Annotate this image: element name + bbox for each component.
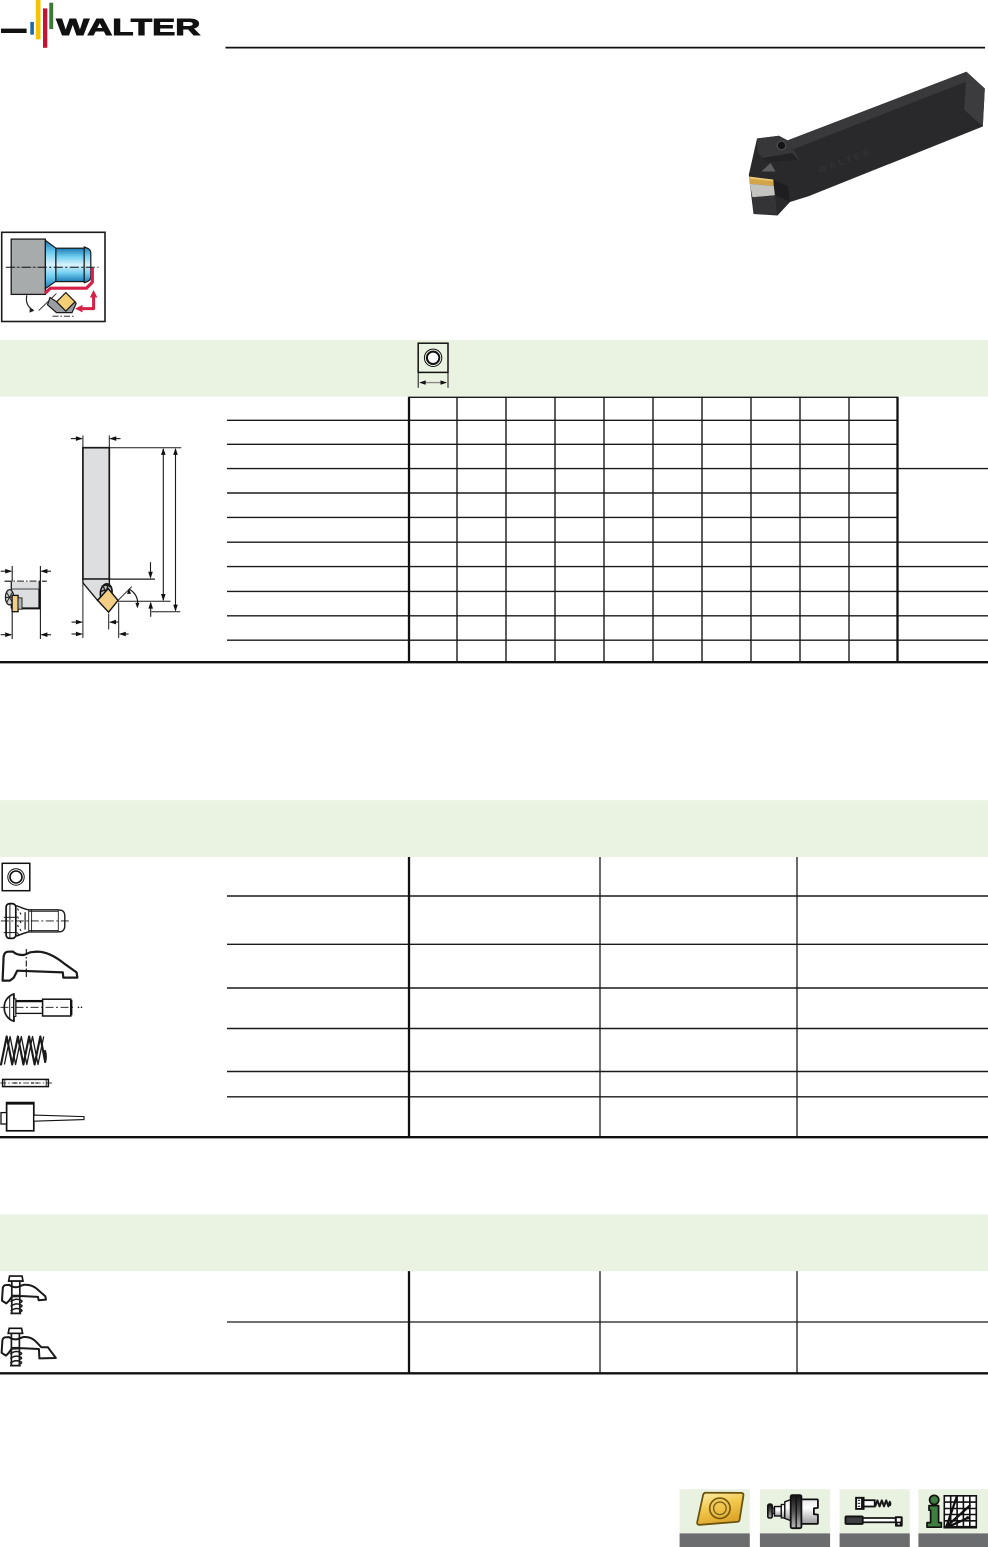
svg-text:WALTER: WALTER — [56, 15, 200, 41]
